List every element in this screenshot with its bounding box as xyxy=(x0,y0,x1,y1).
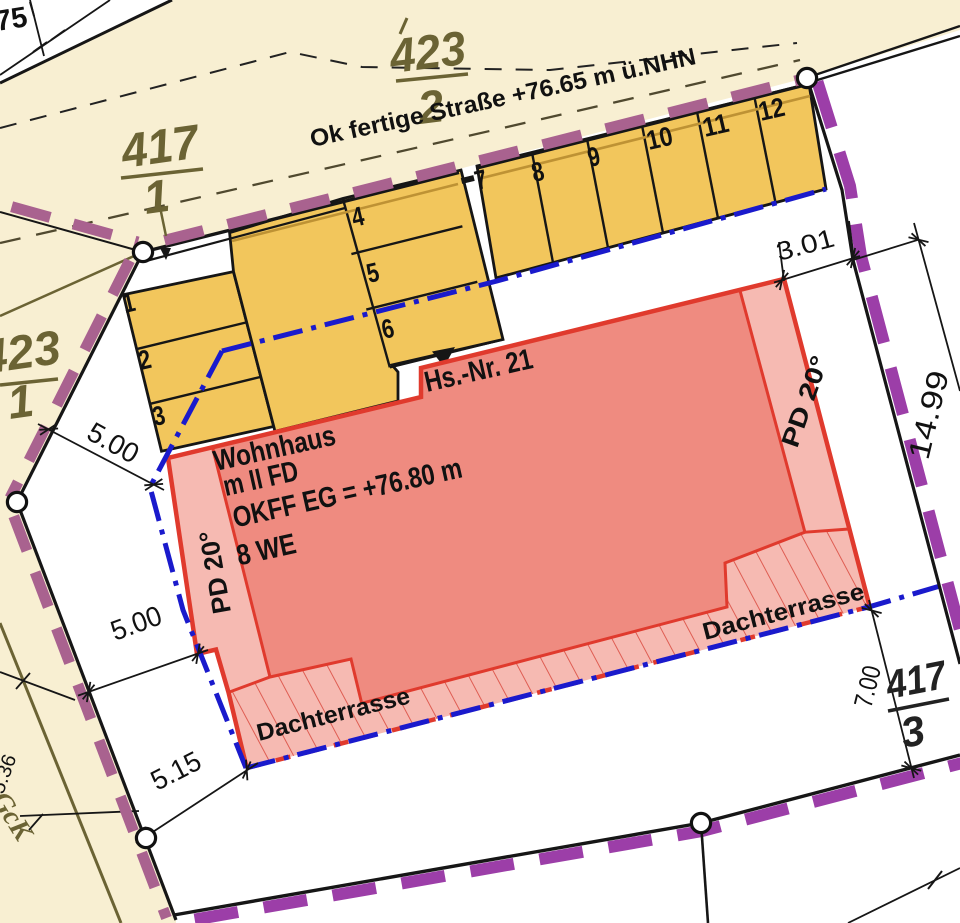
svg-text:75: 75 xyxy=(0,1,30,38)
